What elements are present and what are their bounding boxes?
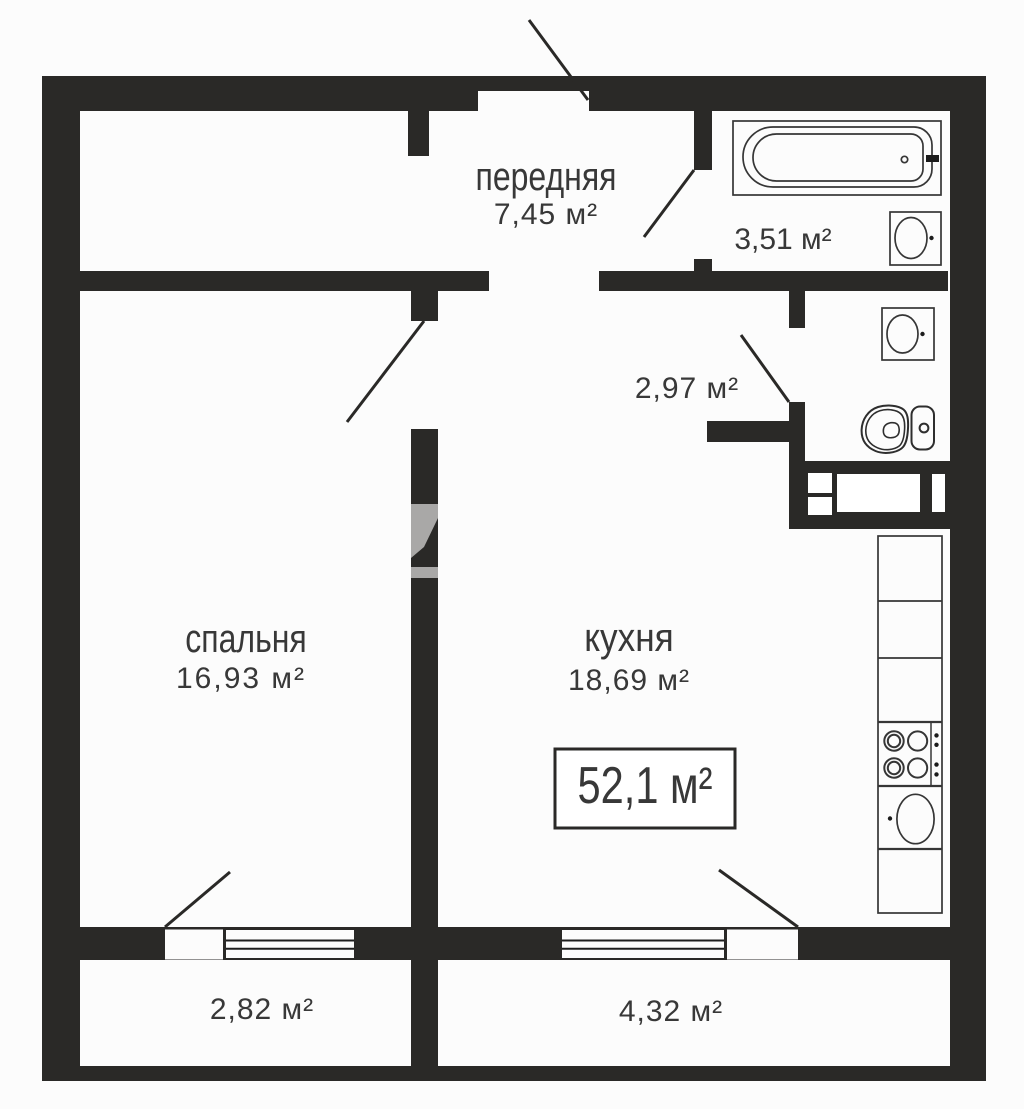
- svg-text:2,97 м²: 2,97 м²: [635, 372, 739, 405]
- svg-text:52,1 м²: 52,1 м²: [578, 756, 713, 815]
- svg-text:спальня: спальня: [185, 616, 306, 661]
- svg-text:4,32 м²: 4,32 м²: [619, 995, 723, 1028]
- svg-text:передняя: передняя: [475, 154, 616, 199]
- svg-text:7,45 м²: 7,45 м²: [494, 198, 598, 231]
- svg-text:18,69 м²: 18,69 м²: [568, 664, 690, 697]
- svg-text:2,82 м²: 2,82 м²: [210, 993, 314, 1026]
- svg-text:кухня: кухня: [584, 615, 673, 660]
- svg-text:3,51 м²: 3,51 м²: [734, 223, 831, 256]
- svg-text:16,93 м²: 16,93 м²: [176, 662, 306, 695]
